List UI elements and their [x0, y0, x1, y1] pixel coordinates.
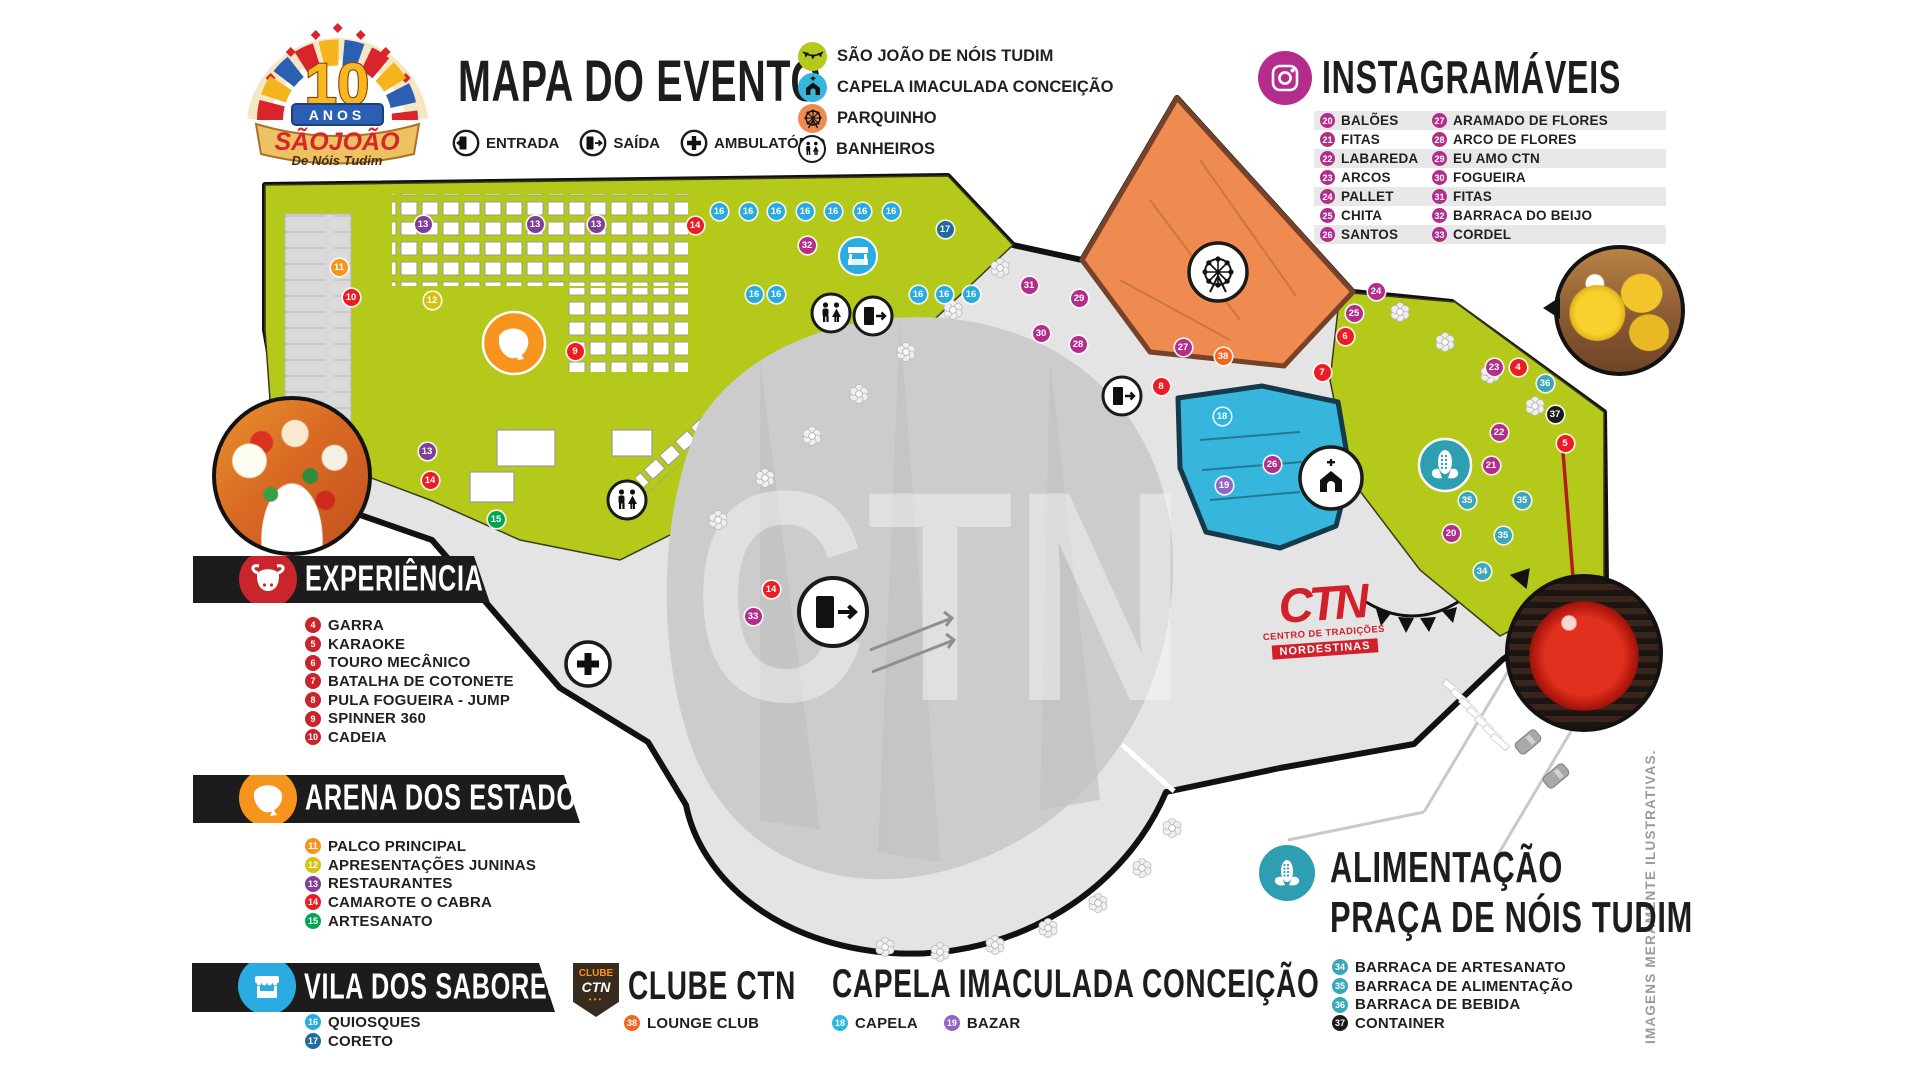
item-number-badge: 32	[1432, 208, 1447, 223]
map-marker-35: 35	[1495, 527, 1512, 544]
map-marker-13: 13	[415, 216, 432, 233]
map-marker-16: 16	[768, 203, 785, 220]
map-marker-6: 6	[1337, 328, 1354, 345]
instagramaveis-row: 20BALÕES27ARAMADO DE FLORES	[1314, 111, 1666, 130]
experiencias-header: EXPERIÊNCIAS	[193, 556, 490, 603]
map-marker-14: 14	[763, 581, 780, 598]
item-number-badge: 12	[305, 857, 321, 873]
poi-legend-sao-joao: SÃO JOÃO DE NÓIS TUDIM	[798, 41, 1053, 71]
map-marker-29: 29	[1071, 290, 1088, 307]
legend-item: 12APRESENTAÇÕES JUNINAS	[305, 856, 536, 875]
item-number-badge: 14	[305, 894, 321, 910]
map-marker-24: 24	[1368, 283, 1385, 300]
map-marker-16: 16	[768, 286, 785, 303]
legend-item: 35BARRACA DE ALIMENTAÇÃO	[1332, 977, 1573, 996]
instagramaveis-item: 24PALLET	[1320, 189, 1432, 204]
map-marker-21: 21	[1483, 457, 1500, 474]
map-marker-5: 5	[1557, 435, 1574, 452]
map-marker-30: 30	[1033, 325, 1050, 342]
exit-door-icon	[1103, 377, 1141, 415]
capela-list: 18CAPELA19BAZAR	[832, 1014, 1020, 1033]
instagramaveis-item: 27ARAMADO DE FLORES	[1432, 113, 1662, 128]
page-title: MAPA DO EVENTO	[458, 48, 822, 115]
legend-item: 14CAMAROTE O CABRA	[305, 893, 536, 912]
poi-legend-parquinho: PARQUINHO	[798, 103, 937, 133]
item-label: ARCOS	[1341, 170, 1391, 185]
map-marker-15: 15	[488, 511, 505, 528]
brazil-map-icon	[483, 312, 545, 374]
item-label: FITAS	[1341, 132, 1380, 147]
item-label: BARRACA DE BEBIDA	[1355, 996, 1520, 1013]
item-number-badge: 30	[1432, 170, 1447, 185]
door-enter-icon	[452, 129, 480, 157]
item-label: CORETO	[328, 1033, 393, 1050]
legend-item: 17CORETO	[305, 1032, 421, 1051]
item-number-badge: 21	[1320, 132, 1335, 147]
legend-item: 34BARRACA DE ARTESANATO	[1332, 958, 1573, 977]
vila-list: 16QUIOSQUES17CORETO	[305, 1013, 421, 1050]
instagramaveis-row: 23ARCOS30FOGUEIRA	[1314, 168, 1666, 187]
map-marker-16: 16	[883, 203, 900, 220]
map-marker-37: 37	[1547, 406, 1564, 423]
instagramaveis-row: 24PALLET31FITAS	[1314, 187, 1666, 206]
item-number-badge: 9	[305, 711, 321, 727]
item-number-badge: 6	[305, 655, 321, 671]
instagramaveis-row: 21FITAS28ARCO DE FLORES	[1314, 130, 1666, 149]
stall-grid-a	[392, 194, 688, 286]
poi-legend-banheiros: BANHEIROS	[798, 134, 935, 164]
instagramaveis-item: 30FOGUEIRA	[1432, 170, 1662, 185]
map-marker-11: 11	[331, 259, 348, 276]
item-label: BARRACA DE ARTESANATO	[1355, 959, 1566, 976]
item-number-badge: 34	[1332, 959, 1348, 975]
item-label: LABAREDA	[1341, 151, 1418, 166]
instagramaveis-row: 22LABAREDA29EU AMO CTN	[1314, 149, 1666, 168]
item-label: RESTAURANTES	[328, 875, 453, 892]
arena-list: 11PALCO PRINCIPAL12APRESENTAÇÕES JUNINAS…	[305, 837, 536, 930]
map-marker-18: 18	[1214, 408, 1231, 425]
door-exit-icon	[579, 129, 607, 157]
clube-list: 38LOUNGE CLUB	[624, 1014, 759, 1033]
legend-item: 11PALCO PRINCIPAL	[305, 837, 536, 856]
instagramaveis-item: 29EU AMO CTN	[1432, 151, 1662, 166]
item-number-badge: 37	[1332, 1015, 1348, 1031]
church-icon	[1300, 447, 1362, 509]
exit-door-icon	[854, 297, 892, 335]
legend-item: 10CADEIA	[305, 728, 514, 747]
item-number-badge: 28	[1432, 132, 1447, 147]
item-label: CAMAROTE O CABRA	[328, 894, 492, 911]
item-label: BALÕES	[1341, 113, 1398, 128]
item-label: BAZAR	[967, 1015, 1021, 1032]
map-marker-14: 14	[422, 472, 439, 489]
entrada-label: ENTRADA	[486, 135, 559, 152]
poi-label: CAPELA IMACULADA CONCEIÇÃO	[837, 78, 1114, 97]
instagramaveis-item: 23ARCOS	[1320, 170, 1432, 185]
event-map-page: { "logo": {"num":"10","anos":"ANOS","nam…	[0, 0, 1920, 1080]
item-number-badge: 26	[1320, 227, 1335, 242]
map-marker-13: 13	[419, 443, 436, 460]
bunting-flags-icon	[798, 42, 827, 71]
restroom-icon	[608, 481, 646, 519]
map-marker-8: 8	[1153, 378, 1170, 395]
map-marker-38: 38	[1215, 348, 1232, 365]
medical-cross-icon	[680, 129, 708, 157]
crosswalk	[1442, 679, 1509, 750]
map-marker-31: 31	[1021, 277, 1038, 294]
logo-name: SÃOJOÃO	[274, 126, 400, 156]
entry-legend-saida: SAÍDA	[579, 129, 660, 157]
item-number-badge: 8	[305, 692, 321, 708]
map-marker-9: 9	[567, 343, 584, 360]
item-number-badge: 31	[1432, 189, 1447, 204]
map-marker-7: 7	[1314, 364, 1331, 381]
item-label: TOURO MECÂNICO	[328, 654, 471, 671]
alimentacao-list: 34BARRACA DE ARTESANATO35BARRACA DE ALIM…	[1332, 958, 1573, 1033]
item-number-badge: 10	[305, 729, 321, 745]
legend-item: 19BAZAR	[944, 1014, 1021, 1033]
instagramaveis-item: 22LABAREDA	[1320, 151, 1432, 166]
poi-label: BANHEIROS	[836, 140, 935, 159]
item-number-badge: 19	[944, 1015, 960, 1031]
main-exit-door-icon	[799, 578, 867, 646]
legend-item: 38LOUNGE CLUB	[624, 1014, 759, 1033]
map-marker-14: 14	[687, 217, 704, 234]
medical-cross-icon	[566, 642, 610, 686]
item-label: ARCO DE FLORES	[1453, 132, 1577, 147]
map-marker-16: 16	[936, 286, 953, 303]
item-number-badge: 25	[1320, 208, 1335, 223]
map-marker-36: 36	[1537, 375, 1554, 392]
map-marker-33: 33	[745, 608, 762, 625]
map-marker-35: 35	[1514, 492, 1531, 509]
item-label: SPINNER 360	[328, 710, 426, 727]
map-marker-19: 19	[1216, 477, 1233, 494]
map-marker-26: 26	[1264, 456, 1281, 473]
item-label: PALCO PRINCIPAL	[328, 838, 466, 855]
ctn-logo-word: CTN	[1254, 578, 1391, 631]
ctn-brand-logo: CTN CENTRO DE TRADIÇÕES NORDESTINAS	[1254, 578, 1393, 661]
experiencias-list: 4GARRA5KARAOKE6TOURO MECÂNICO7BATALHA DE…	[305, 616, 514, 747]
instagramaveis-row: 26SANTOS33CORDEL	[1314, 225, 1666, 244]
item-label: BATALHA DE COTONETE	[328, 673, 514, 690]
alimentacao-title-line2: PRAÇA DE NÓIS TUDIM	[1330, 893, 1693, 943]
instagramaveis-item: 32BARRACA DO BEIJO	[1432, 208, 1662, 223]
instagramaveis-item: 33CORDEL	[1432, 227, 1662, 242]
corn-icon	[1259, 845, 1315, 901]
instagramaveis-item: 28ARCO DE FLORES	[1432, 132, 1662, 147]
item-label: CONTAINER	[1355, 1015, 1445, 1032]
poi-label: SÃO JOÃO DE NÓIS TUDIM	[837, 47, 1053, 66]
poi-label: PARQUINHO	[837, 109, 937, 128]
brazil-map-icon	[239, 769, 297, 827]
map-marker-17: 17	[937, 221, 954, 238]
kiosk-icon	[238, 957, 296, 1015]
instagramaveis-item: 21FITAS	[1320, 132, 1432, 147]
item-number-badge: 38	[624, 1015, 640, 1031]
bull-icon	[239, 550, 297, 608]
map-marker-16: 16	[746, 286, 763, 303]
instagramaveis-item: 26SANTOS	[1320, 227, 1432, 242]
map-marker-16: 16	[740, 203, 757, 220]
instagramaveis-table: 20BALÕES27ARAMADO DE FLORES21FITAS28ARCO…	[1314, 111, 1666, 244]
item-number-badge: 27	[1432, 113, 1447, 128]
church-icon	[798, 73, 827, 102]
item-label: EU AMO CTN	[1453, 151, 1540, 166]
stall-grid-b	[566, 288, 688, 372]
ferris-wheel-icon	[1189, 243, 1247, 301]
map-marker-22: 22	[1491, 424, 1508, 441]
food-stall-icon	[839, 237, 877, 275]
instagram-icon	[1258, 51, 1312, 105]
map-marker-13: 13	[527, 216, 544, 233]
item-label: CADEIA	[328, 729, 387, 746]
item-number-badge: 5	[305, 636, 321, 652]
instagramaveis-item: 20BALÕES	[1320, 113, 1432, 128]
ferris-wheel-icon	[798, 104, 827, 133]
map-marker-27: 27	[1175, 339, 1192, 356]
legend-item: 15ARTESANATO	[305, 912, 536, 931]
legend-item: 5KARAOKE	[305, 635, 514, 654]
logo-anos: ANOS	[309, 107, 365, 123]
legend-item: 4GARRA	[305, 616, 514, 635]
map-marker-4: 4	[1510, 359, 1527, 376]
map-marker-16: 16	[910, 286, 927, 303]
item-label: KARAOKE	[328, 636, 405, 653]
map-marker-16: 16	[825, 203, 842, 220]
clube-title: CLUBE CTN	[628, 964, 796, 1009]
map-marker-35: 35	[1459, 492, 1476, 509]
map-marker-23: 23	[1486, 359, 1503, 376]
corn-icon	[1419, 439, 1471, 491]
badge-dots: •••	[573, 995, 619, 1004]
map-marker-34: 34	[1474, 563, 1491, 580]
item-label: ARTESANATO	[328, 913, 433, 930]
candy-apple-photo	[1505, 574, 1663, 732]
item-number-badge: 17	[305, 1033, 321, 1049]
item-label: BARRACA DE ALIMENTAÇÃO	[1355, 978, 1573, 995]
entry-legend: ENTRADA SAÍDA AMBULATÓRIO	[452, 129, 825, 157]
item-number-badge: 18	[832, 1015, 848, 1031]
poi-legend-capela: CAPELA IMACULADA CONCEIÇÃO	[798, 72, 1114, 102]
map-marker-25: 25	[1346, 305, 1363, 322]
saida-label: SAÍDA	[613, 135, 660, 152]
item-label: GARRA	[328, 617, 384, 634]
vila-header: VILA DOS SABORES	[192, 963, 555, 1012]
item-number-badge: 13	[305, 876, 321, 892]
arena-title: ARENA DOS ESTADOS	[305, 776, 594, 818]
legend-item: 37CONTAINER	[1332, 1014, 1573, 1033]
badge-ctn-text: CTN	[573, 979, 619, 995]
instagramaveis-title: INSTAGRAMÁVEIS	[1322, 50, 1621, 104]
festival-logo: 10 ANOS SÃOJOÃO De Nóis Tudim	[240, 8, 435, 168]
item-label: APRESENTAÇÕES JUNINAS	[328, 857, 536, 874]
corn-drink-photo	[1554, 245, 1685, 376]
item-number-badge: 22	[1320, 151, 1335, 166]
map-marker-13: 13	[588, 216, 605, 233]
item-number-badge: 29	[1432, 151, 1447, 166]
item-label: FOGUEIRA	[1453, 170, 1526, 185]
alimentacao-title-line1: ALIMENTAÇÃO	[1330, 843, 1563, 893]
item-number-badge: 20	[1320, 113, 1335, 128]
capela-items: 18CAPELA19BAZAR	[832, 1014, 1020, 1033]
item-label: CORDEL	[1453, 227, 1511, 242]
instagramaveis-item: 25CHITA	[1320, 208, 1432, 223]
item-number-badge: 15	[305, 913, 321, 929]
legend-item: 8PULA FOGUEIRA - JUMP	[305, 691, 514, 710]
map-marker-16: 16	[797, 203, 814, 220]
map-marker-16: 16	[854, 203, 871, 220]
legend-item: 36BARRACA DE BEBIDA	[1332, 995, 1573, 1014]
item-number-badge: 24	[1320, 189, 1335, 204]
item-label: ARAMADO DE FLORES	[1453, 113, 1608, 128]
legend-item: 7BATALHA DE COTONETE	[305, 672, 514, 691]
legend-item: 9SPINNER 360	[305, 709, 514, 728]
restroom-icon	[812, 294, 850, 332]
item-number-badge: 33	[1432, 227, 1447, 242]
map-marker-20: 20	[1443, 525, 1460, 542]
item-number-badge: 35	[1332, 978, 1348, 994]
badge-clube-text: CLUBE	[573, 968, 619, 979]
instagramaveis-item: 31FITAS	[1432, 189, 1662, 204]
item-label: QUIOSQUES	[328, 1014, 421, 1031]
map-marker-32: 32	[799, 237, 816, 254]
item-number-badge: 7	[305, 673, 321, 689]
item-label: PULA FOGUEIRA - JUMP	[328, 692, 510, 709]
map-marker-16: 16	[711, 203, 728, 220]
item-label: CHITA	[1341, 208, 1382, 223]
experiencias-title: EXPERIÊNCIAS	[305, 557, 501, 599]
item-label: LOUNGE CLUB	[647, 1015, 759, 1032]
map-marker-10: 10	[343, 289, 360, 306]
logo-tagline: De Nóis Tudim	[292, 153, 383, 168]
restroom-icon	[798, 135, 826, 163]
map-marker-16: 16	[963, 286, 980, 303]
item-number-badge: 23	[1320, 170, 1335, 185]
legend-item: 6TOURO MECÂNICO	[305, 653, 514, 672]
item-label: SANTOS	[1341, 227, 1398, 242]
parking-strip	[285, 214, 351, 426]
legend-item: 16QUIOSQUES	[305, 1013, 421, 1032]
item-label: PALLET	[1341, 189, 1394, 204]
entry-legend-entrada: ENTRADA	[452, 129, 559, 157]
instagramaveis-row: 25CHITA32BARRACA DO BEIJO	[1314, 206, 1666, 225]
arena-header: ARENA DOS ESTADOS	[193, 775, 580, 823]
capela-title: CAPELA IMACULADA CONCEIÇÃO	[832, 962, 1319, 1007]
map-marker-12: 12	[424, 292, 441, 309]
vila-title: VILA DOS SABORES	[304, 965, 565, 1007]
item-number-badge: 16	[305, 1014, 321, 1030]
item-label: FITAS	[1453, 189, 1492, 204]
item-label: CAPELA	[855, 1015, 918, 1032]
item-label: BARRACA DO BEIJO	[1453, 208, 1592, 223]
legend-item: 13RESTAURANTES	[305, 874, 536, 893]
item-number-badge: 4	[305, 617, 321, 633]
food-dish-photo	[212, 396, 372, 556]
map-marker-28: 28	[1070, 336, 1087, 353]
item-number-badge: 36	[1332, 997, 1348, 1013]
legend-item: 18CAPELA	[832, 1014, 918, 1033]
item-number-badge: 11	[305, 838, 321, 854]
